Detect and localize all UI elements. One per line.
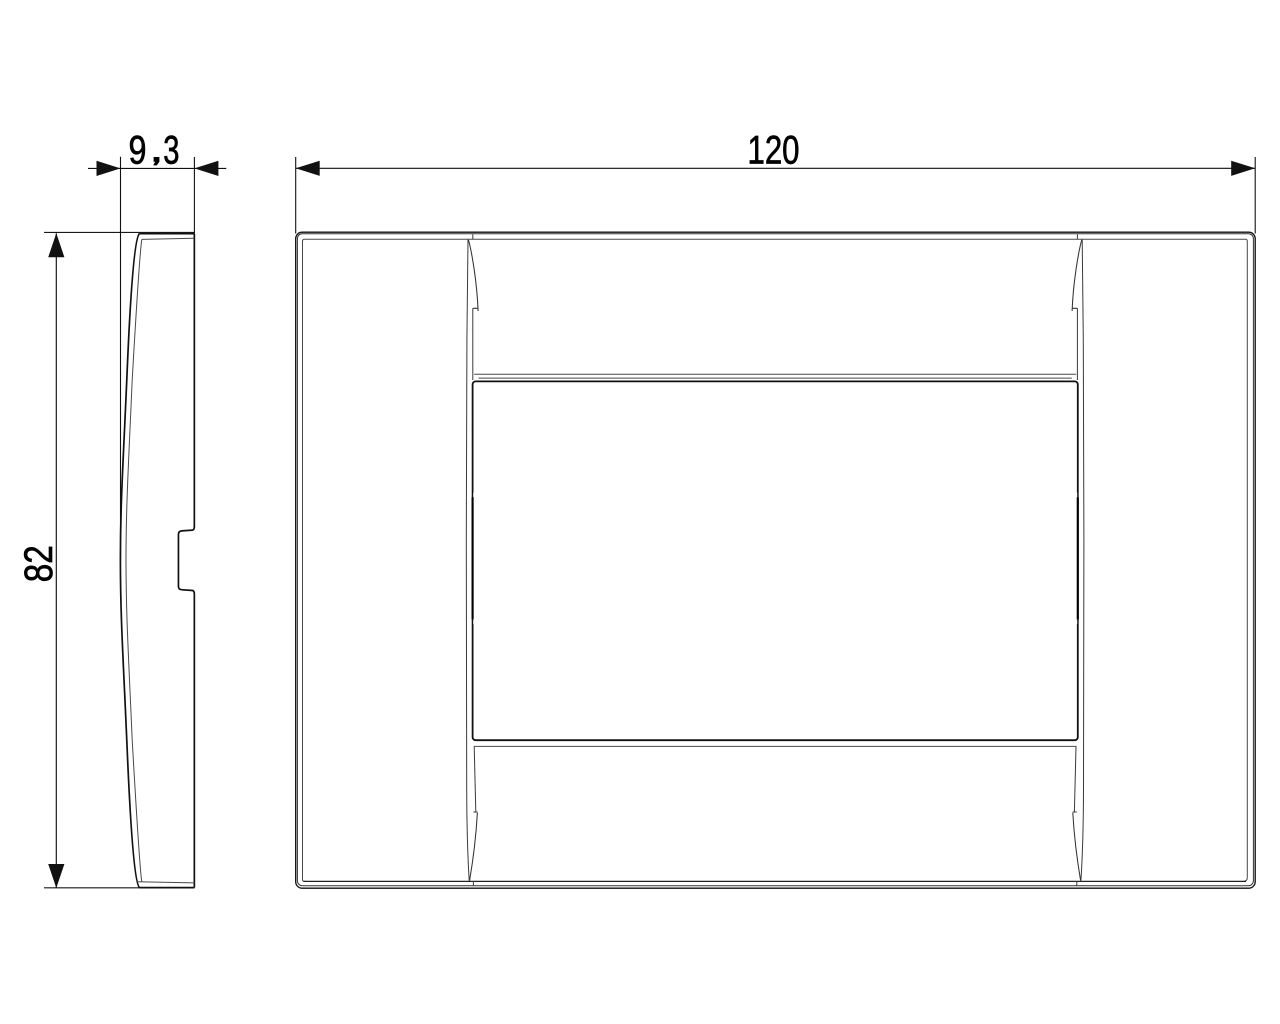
svg-text:120: 120 xyxy=(748,129,800,173)
svg-text:3: 3 xyxy=(163,129,179,173)
svg-text:9: 9 xyxy=(129,129,147,173)
svg-text:82: 82 xyxy=(17,545,61,582)
